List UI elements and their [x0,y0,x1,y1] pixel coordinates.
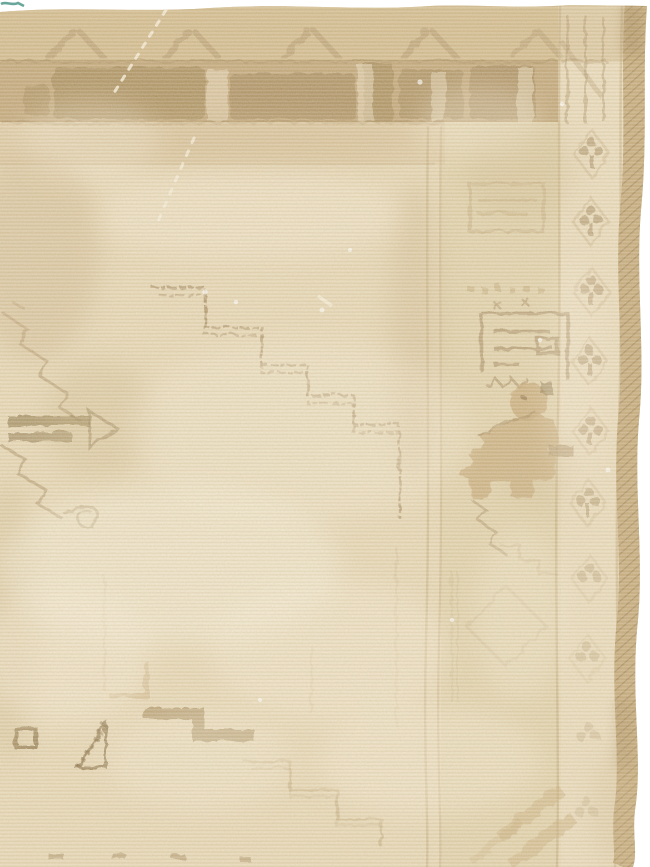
grain-white-texture [0,0,650,867]
rug-photograph [0,0,650,867]
rug-art [0,0,650,867]
rug-body [0,0,650,867]
